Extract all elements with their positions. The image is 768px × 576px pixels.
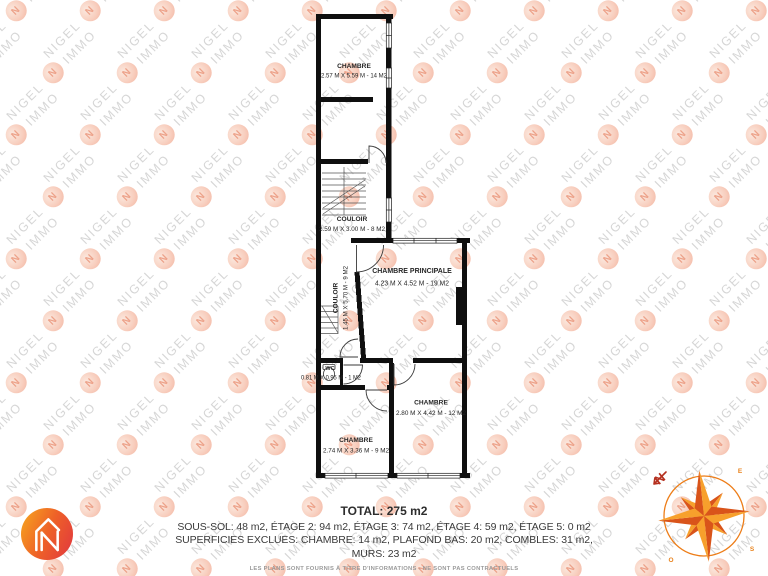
room-dims: 0.81 M X 0.95 M - 1 M2 — [301, 375, 362, 382]
room-labels: CHAMBRE 2.57 M X 5.59 M - 14 M2 COULOIR … — [301, 63, 466, 455]
compass-label-east: E — [738, 468, 743, 475]
compass-star — [653, 465, 754, 566]
logo-n-house-icon — [27, 514, 67, 554]
page: NIGELNIMMONIGELNIMMONIGELNIMMONIGELNIMMO… — [0, 0, 768, 576]
room-name: CHAMBRE — [339, 437, 373, 444]
walls — [316, 14, 470, 478]
room-dims: 1.45 M X 5.70 M - 9 M2 — [343, 266, 350, 330]
room-dims: 2.80 M X 4.42 M - 12 M2 — [396, 410, 466, 417]
compass-rose: NESO — [644, 456, 764, 576]
agency-logo — [21, 508, 73, 560]
room-name: COULOIR — [333, 283, 340, 314]
staircase-main — [322, 167, 366, 215]
room-name: CHAMBRE PRINCIPALE — [372, 268, 452, 275]
room-name: CHAMBRE — [414, 400, 448, 407]
room-dims: 4.23 M X 4.52 M - 19 M2 — [375, 281, 449, 288]
room-name: CHAMBRE — [337, 63, 371, 70]
compass-label-south: S — [750, 546, 755, 553]
doors — [340, 146, 415, 411]
compass-label-west: O — [668, 557, 673, 564]
room-dims: 2.74 M X 3.36 M - 9 M2 — [323, 448, 389, 455]
room-dims: 2.57 M X 5.59 M - 14 M2 — [321, 73, 387, 80]
room-name: WC — [325, 366, 334, 372]
room-dims: 2.59 M X 3.00 M - 8 M2 — [319, 226, 385, 233]
room-name: COULOIR — [337, 216, 368, 223]
